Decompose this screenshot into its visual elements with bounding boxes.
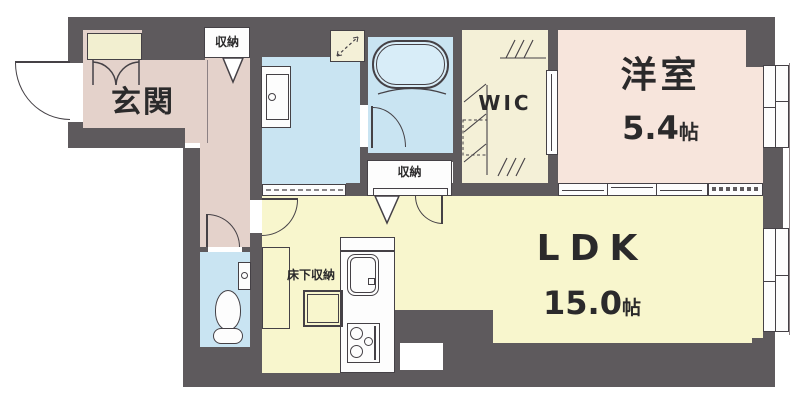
window-bedroom-tick-1 <box>776 101 788 102</box>
wall-bath-top <box>365 17 453 37</box>
label-bedroom-size: 5.4帖 <box>558 112 763 144</box>
bedroom-slide-divider-1 <box>607 184 608 195</box>
label-ldk-size: 15.0帖 <box>482 287 702 319</box>
label-genkan: 玄関 <box>78 88 208 118</box>
refrigerator-space <box>262 247 290 329</box>
ldk-size-unit: 帖 <box>622 297 641 319</box>
bedroom-slide-panel-line-3 <box>660 190 702 191</box>
vanity-drain <box>268 93 276 101</box>
wall-corner-bottom-right <box>752 338 775 387</box>
bedroom-slide-panel-line-1 <box>562 190 604 191</box>
bedroom-slide-divider-2 <box>656 184 657 195</box>
window-ldk-tick-1 <box>776 275 788 276</box>
wall-top-left-block <box>142 17 205 60</box>
toilet-hand-basin-bowl <box>241 272 248 279</box>
window-ldk <box>763 228 789 332</box>
wall-bottom-left <box>262 373 395 387</box>
label-bath-closet: 収納 <box>367 166 452 178</box>
doorway-toilet <box>208 247 242 252</box>
wall-corridor-right-lower <box>250 233 262 347</box>
wall-over-washroom <box>250 17 330 57</box>
bath-closet-track <box>373 188 448 196</box>
underfloor-storage-inner <box>307 294 339 323</box>
floor-plan: 玄関 収納 収納 WIC 洋室 5.4帖 LDK 15.0帖 床下収納 <box>0 0 800 402</box>
open-partition-strip <box>708 183 763 196</box>
window-ldk-tick-2 <box>764 281 775 282</box>
label-hall-closet: 収納 <box>204 36 250 48</box>
window-outer-line <box>789 63 790 335</box>
kitchen-sink-inner <box>350 257 376 293</box>
wall-genkan-bottom <box>68 128 185 148</box>
washroom-sliding-door <box>262 184 346 196</box>
shoe-cabinet <box>87 33 142 60</box>
bedroom-size-unit: 帖 <box>679 120 699 144</box>
toilet-base <box>213 328 243 344</box>
wall-notch <box>400 343 443 370</box>
wall-wic-right-upper <box>548 17 558 70</box>
stove-burner-1 <box>350 327 363 340</box>
wall-under-wic <box>452 183 558 196</box>
room-bedroom <box>558 30 763 183</box>
toilet-bowl <box>215 290 241 330</box>
wall-right-low <box>763 330 775 345</box>
label-bedroom: 洋室 <box>558 58 763 94</box>
wall-left-upper <box>68 17 83 63</box>
bedroom-size-value: 5.4 <box>622 109 679 147</box>
label-wic: WIC <box>462 93 548 113</box>
bedroom-slide-panel-line-2 <box>611 187 653 188</box>
window-bedroom-tick-2 <box>764 107 775 108</box>
wall-bottom-toilet <box>183 347 262 387</box>
kitchen-sink-drain <box>368 278 375 285</box>
kitchen-counter-cap-line <box>341 250 394 252</box>
window-bedroom-sash <box>775 66 776 147</box>
ldk-size-value: 15.0 <box>543 284 622 322</box>
doorway-bathroom <box>360 105 368 147</box>
wall-wash-closet-stub <box>346 183 368 196</box>
wic-sliding-door-line <box>551 74 552 151</box>
stove-grill-line <box>374 326 376 360</box>
stove-burner-3 <box>364 337 373 346</box>
window-ldk-sash <box>775 229 776 331</box>
wall-bottom-right <box>493 343 763 387</box>
entrance-door-arc <box>15 63 70 120</box>
hatch-square <box>330 30 365 62</box>
stove-burner-2 <box>350 345 363 358</box>
label-underfloor-storage: 床下収納 <box>272 269 350 281</box>
wall-right-mid <box>763 148 783 228</box>
wall-wic-right-lower <box>548 155 558 183</box>
bathtub-inner <box>376 44 445 85</box>
doorway-ldk <box>250 200 262 233</box>
label-ldk: LDK <box>482 231 702 267</box>
